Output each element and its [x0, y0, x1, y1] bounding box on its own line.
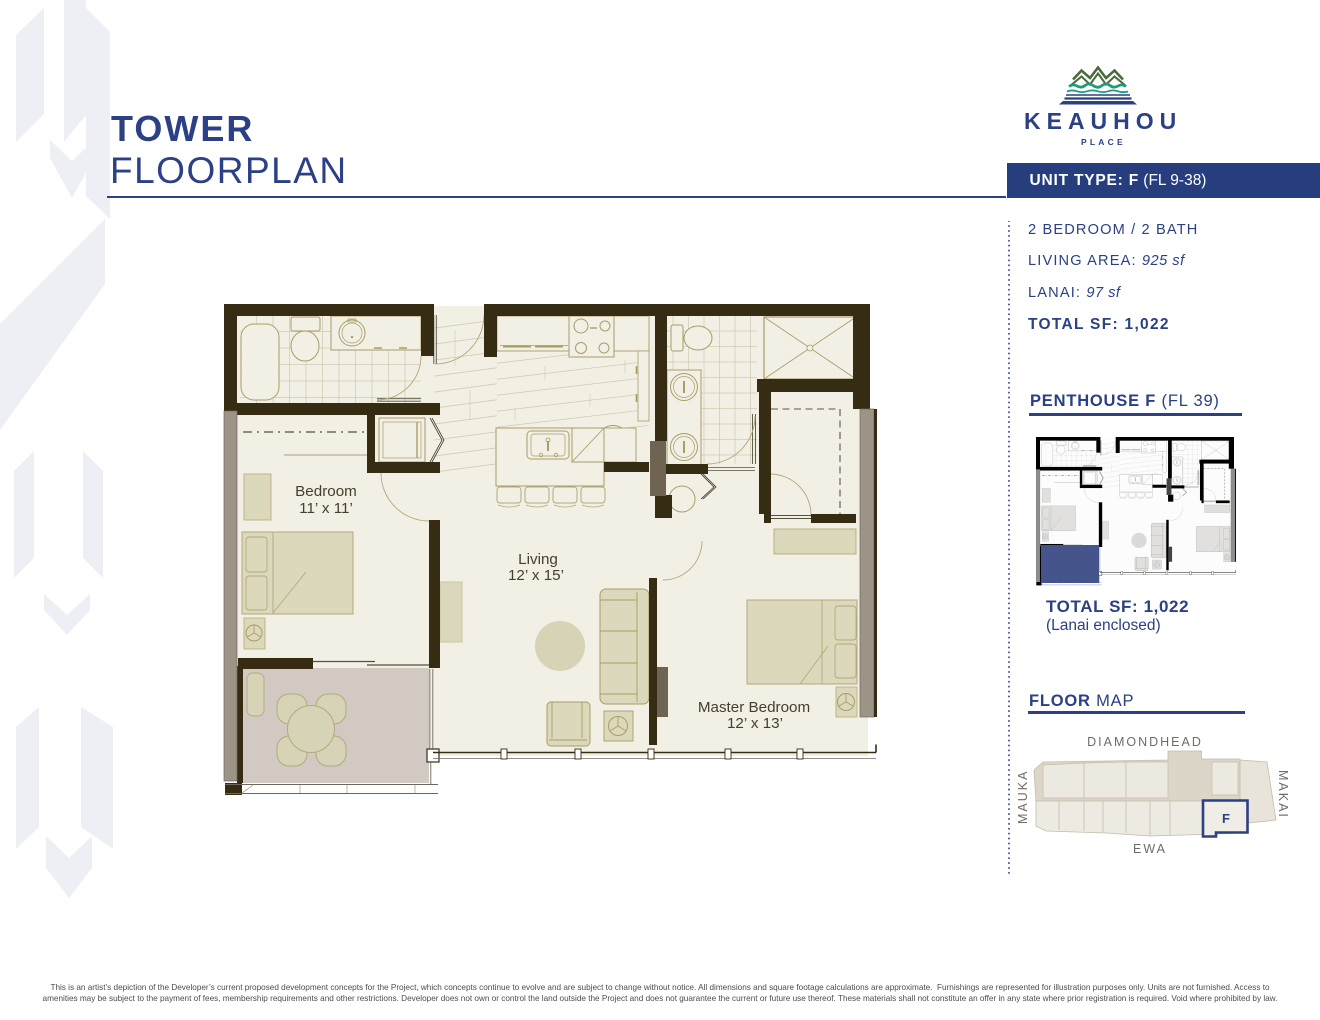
- svg-text:F: F: [1222, 811, 1230, 826]
- svg-text:Master Bedroom: Master Bedroom: [698, 699, 810, 716]
- svg-text:Living: Living: [518, 551, 558, 568]
- svg-text:11’ x 11’: 11’ x 11’: [299, 500, 353, 517]
- svg-text:12’ x 15’: 12’ x 15’: [508, 567, 564, 584]
- svg-text:12’ x 13’: 12’ x 13’: [727, 715, 783, 732]
- svg-text:Bedroom: Bedroom: [295, 483, 357, 500]
